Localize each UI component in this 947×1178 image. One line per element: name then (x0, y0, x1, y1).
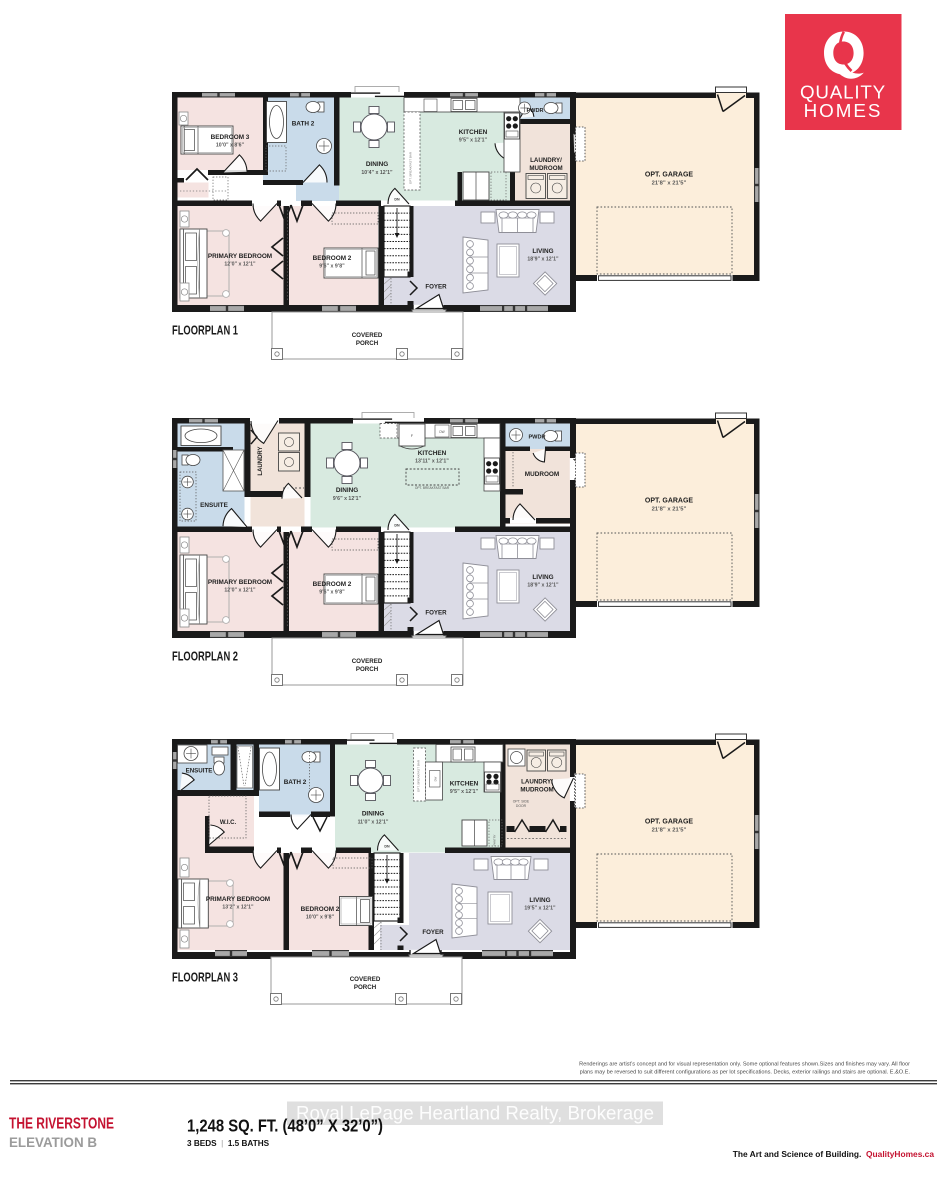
svg-text:OPT. GARAGE: OPT. GARAGE (645, 498, 694, 505)
svg-text:DOOR: DOOR (516, 804, 527, 808)
svg-text:ENSUITE: ENSUITE (186, 768, 213, 775)
svg-text:OPT. BREAKFAST BAR: OPT. BREAKFAST BAR (417, 759, 421, 792)
svg-text:DN: DN (394, 524, 400, 528)
svg-text:OPT. BREAKFAST BAR: OPT. BREAKFAST BAR (415, 486, 450, 490)
svg-text:LAUNDRY: LAUNDRY (258, 446, 264, 475)
svg-text:LAUNDRY/: LAUNDRY/ (521, 779, 553, 786)
svg-text:FLOORPLAN 1: FLOORPLAN 1 (172, 323, 238, 338)
svg-text:Renderings are artist’s concep: Renderings are artist’s concept and for … (579, 1062, 910, 1068)
svg-text:9’6” x 9’8”: 9’6” x 9’8” (319, 264, 345, 270)
svg-text:DINING: DINING (362, 811, 384, 818)
svg-text:10’4” x 12’1”: 10’4” x 12’1” (361, 170, 393, 176)
svg-text:FLOORPLAN 2: FLOORPLAN 2 (172, 649, 238, 664)
svg-text:13’2” x 12’1”: 13’2” x 12’1” (222, 905, 254, 911)
svg-text:ELEVATION B: ELEVATION B (9, 1135, 97, 1151)
svg-text:DINING: DINING (366, 161, 388, 168)
svg-text:9’5” x 12’1”: 9’5” x 12’1” (459, 138, 488, 144)
svg-text:DINING: DINING (336, 487, 358, 494)
svg-text:FLOORPLAN 3: FLOORPLAN 3 (172, 970, 238, 985)
svg-text:W.I.C.: W.I.C. (220, 820, 237, 826)
svg-text:KITCHEN: KITCHEN (450, 781, 479, 788)
svg-text:LIVING: LIVING (532, 248, 553, 255)
svg-text:DW: DW (439, 430, 444, 434)
svg-text:PWDR: PWDR (528, 435, 545, 441)
svg-text:21’8” x 21’5”: 21’8” x 21’5” (652, 828, 687, 834)
svg-text:DN: DN (394, 198, 400, 202)
svg-text:FOYER: FOYER (425, 610, 447, 617)
svg-text:PRIMARY BEDROOM: PRIMARY BEDROOM (206, 896, 270, 903)
svg-text:10’0” x 8’6”: 10’0” x 8’6” (216, 143, 245, 149)
svg-text:13’11” x 12’1”: 13’11” x 12’1” (415, 459, 449, 465)
svg-text:COVERED: COVERED (352, 332, 383, 339)
svg-text:COVERED: COVERED (350, 976, 381, 983)
svg-text:18’9” x 12’1”: 18’9” x 12’1” (527, 257, 559, 263)
svg-text:MUDROOM: MUDROOM (520, 787, 553, 794)
svg-text:9’6” x 9’8”: 9’6” x 9’8” (319, 590, 345, 596)
svg-text:PRIMARY BEDROOM: PRIMARY BEDROOM (208, 579, 272, 586)
svg-text:10’0” x 9’8”: 10’0” x 9’8” (306, 915, 335, 921)
svg-text:MUDROOM: MUDROOM (529, 165, 562, 172)
svg-text:MUDROOM: MUDROOM (525, 471, 559, 478)
svg-text:KITCHEN: KITCHEN (459, 129, 488, 136)
svg-text:FOYER: FOYER (425, 284, 447, 291)
svg-text:BEDROOM 2: BEDROOM 2 (313, 581, 352, 588)
svg-text:plans may be reversed to suit: plans may be reversed to suit different … (580, 1070, 911, 1076)
svg-text:12’0” x 12’1”: 12’0” x 12’1” (224, 262, 256, 268)
svg-text:PWDR: PWDR (526, 108, 543, 114)
svg-text:DW: DW (434, 776, 438, 781)
svg-text:ENSUITE: ENSUITE (200, 502, 228, 509)
svg-text:DN: DN (384, 845, 390, 849)
svg-text:LIVING: LIVING (532, 574, 553, 581)
svg-text:11’0” x 12’1”: 11’0” x 12’1” (358, 820, 389, 826)
svg-text:OPT. GARAGE: OPT. GARAGE (645, 819, 694, 826)
svg-text:BEDROOM 3: BEDROOM 3 (211, 134, 250, 141)
svg-text:KITCHEN: KITCHEN (418, 450, 447, 457)
svg-text:21’8” x 21’5”: 21’8” x 21’5” (652, 181, 687, 187)
svg-text:18’9” x 12’1”: 18’9” x 12’1” (527, 583, 559, 589)
svg-text:BATH 2: BATH 2 (284, 779, 307, 786)
svg-text:LAUNDRY/: LAUNDRY/ (530, 157, 562, 164)
svg-text:21’8” x 21’5”: 21’8” x 21’5” (652, 507, 687, 513)
svg-text:12’0” x 12’1”: 12’0” x 12’1” (224, 588, 256, 594)
svg-text:HOMES: HOMES (804, 100, 883, 121)
svg-text:COVERED: COVERED (352, 658, 383, 665)
svg-text:PORCH: PORCH (354, 984, 377, 991)
svg-text:BEDROOM 2: BEDROOM 2 (301, 906, 340, 913)
svg-text:BATH 2: BATH 2 (292, 121, 315, 128)
svg-text:LIVING: LIVING (529, 897, 550, 904)
svg-text:OPT. BREAKFAST BAR: OPT. BREAKFAST BAR (409, 151, 413, 184)
svg-text:1,248 SQ. FT. (48’0” X 32’0”): 1,248 SQ. FT. (48’0” X 32’0”) (187, 1116, 383, 1136)
svg-text:PRIMARY BEDROOM: PRIMARY BEDROOM (208, 253, 272, 260)
svg-text:THE RIVERSTONE: THE RIVERSTONE (9, 1116, 114, 1133)
svg-text:The Art and Science of Buildin: The Art and Science of Building. Quality… (733, 1149, 935, 1159)
svg-text:BEDROOM 2: BEDROOM 2 (313, 255, 352, 262)
svg-text:19’5” x 12’1”: 19’5” x 12’1” (524, 906, 556, 912)
svg-text:PORCH: PORCH (356, 340, 379, 347)
svg-text:9’5” x 12’1”: 9’5” x 12’1” (450, 789, 479, 795)
svg-text:PORCH: PORCH (356, 666, 379, 673)
svg-text:3 BEDS | 1.5 BATHS: 3 BEDS | 1.5 BATHS (187, 1139, 270, 1148)
svg-text:FOYER: FOYER (422, 929, 444, 936)
svg-text:9’6” x 12’1”: 9’6” x 12’1” (333, 496, 362, 502)
svg-text:OPT. GARAGE: OPT. GARAGE (645, 172, 694, 179)
svg-text:PANTRY: PANTRY (493, 834, 497, 845)
